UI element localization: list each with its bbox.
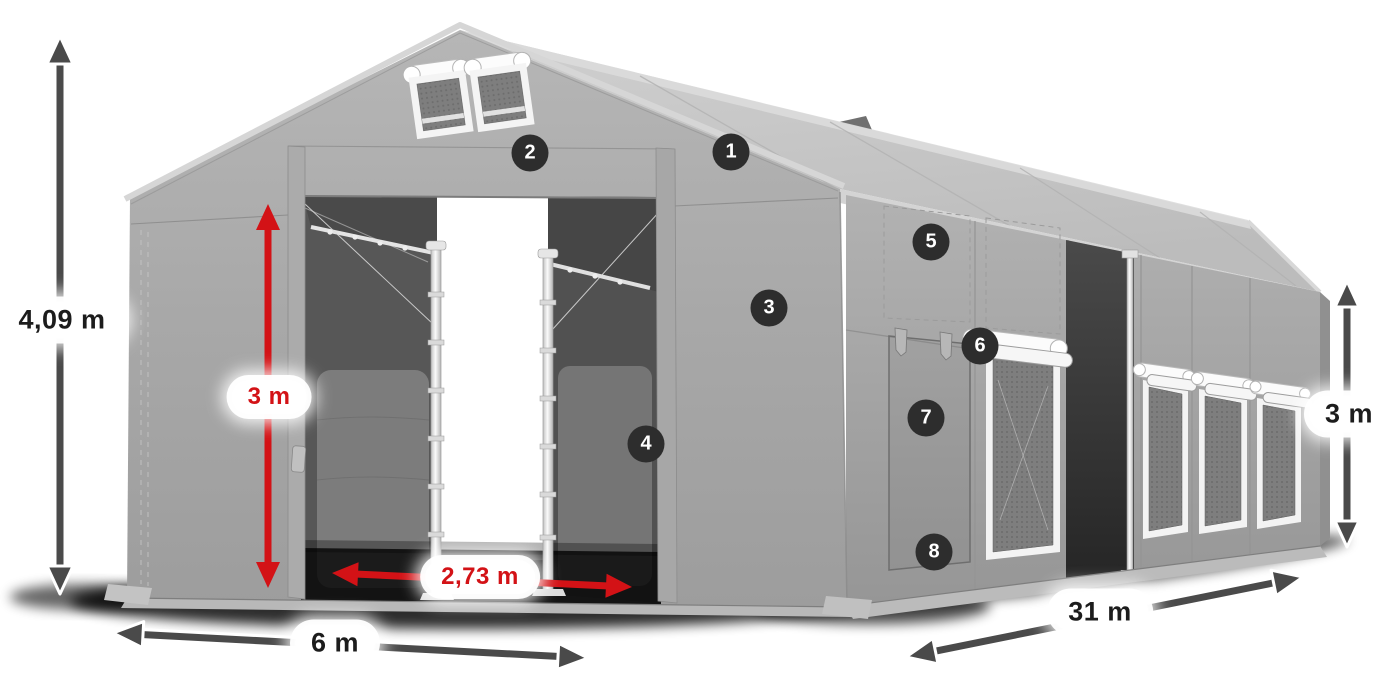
hotspot-badge-6[interactable]: 6 [962,328,999,365]
dimension-label-total-height: 4,09 m [2,302,121,339]
hotspot-badge-4[interactable]: 4 [628,426,665,463]
tent-illustration [0,0,1400,700]
dimension-label-width: 6 m [295,625,375,662]
hotspot-badge-7[interactable]: 7 [908,400,945,437]
dimension-label-length: 31 m [1052,594,1148,631]
side-opening [1066,240,1143,578]
tent-dimension-diagram: 4,09 m 3 m 2,73 m 6 m 31 m 3 m 1 2 3 4 5… [0,0,1400,700]
hotspot-badge-2[interactable]: 2 [512,135,549,172]
hotspot-badge-5[interactable]: 5 [913,224,950,261]
dimension-label-entrance-height: 3 m [232,380,307,414]
entrance-interior [301,196,661,606]
hotspot-badge-3[interactable]: 3 [751,290,788,327]
hotspot-badge-8[interactable]: 8 [916,534,953,571]
dimension-label-entrance-width: 2,73 m [425,560,535,594]
dimension-label-side-height: 3 m [1309,396,1389,433]
hotspot-badge-1[interactable]: 1 [713,134,750,171]
